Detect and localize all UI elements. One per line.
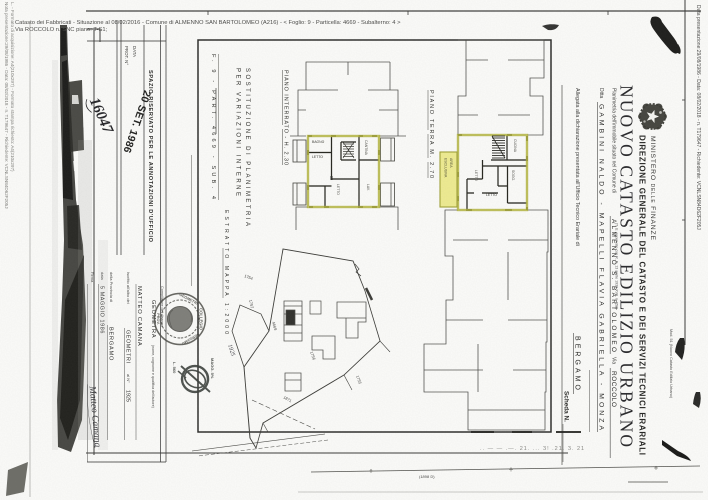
svg-text:Data presentazione:29/08/1986: Data presentazione:29/08/1986 - Data: 08… [695, 5, 701, 230]
svg-text:L. - Formato di acquisizione:: L. - Formato di acquisizione: A4(210x297… [10, 2, 15, 172]
svg-text:Nota presentazione:29/08/1986: Nota presentazione:29/08/1986 - Data: 08… [4, 2, 9, 209]
svg-text:Via ROCCOLO n. SNC piano: T-S1: Via ROCCOLO n. SNC piano: T-S1; [15, 27, 108, 33]
svg-text:Catasto dei Fabbricati - Situa: Catasto dei Fabbricati - Situazione al 0… [15, 20, 401, 26]
